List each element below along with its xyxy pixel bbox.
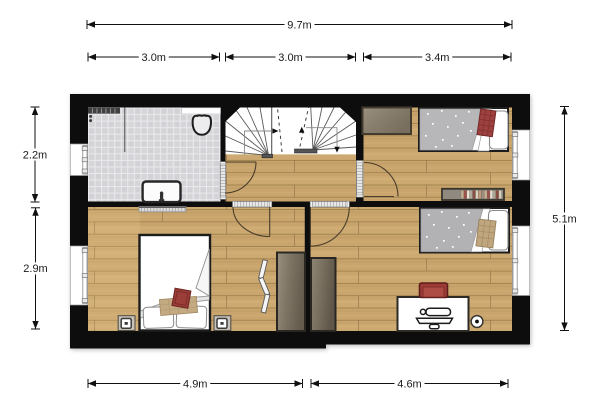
svg-text:9.7m: 9.7m: [287, 19, 311, 31]
svg-text:4.6m: 4.6m: [397, 378, 421, 390]
svg-text:4.9m: 4.9m: [183, 378, 207, 390]
svg-text:5.1m: 5.1m: [552, 213, 576, 225]
svg-text:3.0m: 3.0m: [278, 52, 302, 64]
svg-text:3.4m: 3.4m: [425, 52, 449, 64]
svg-text:2.9m: 2.9m: [23, 263, 47, 275]
svg-text:3.0m: 3.0m: [142, 52, 166, 64]
svg-text:2.2m: 2.2m: [23, 149, 47, 161]
